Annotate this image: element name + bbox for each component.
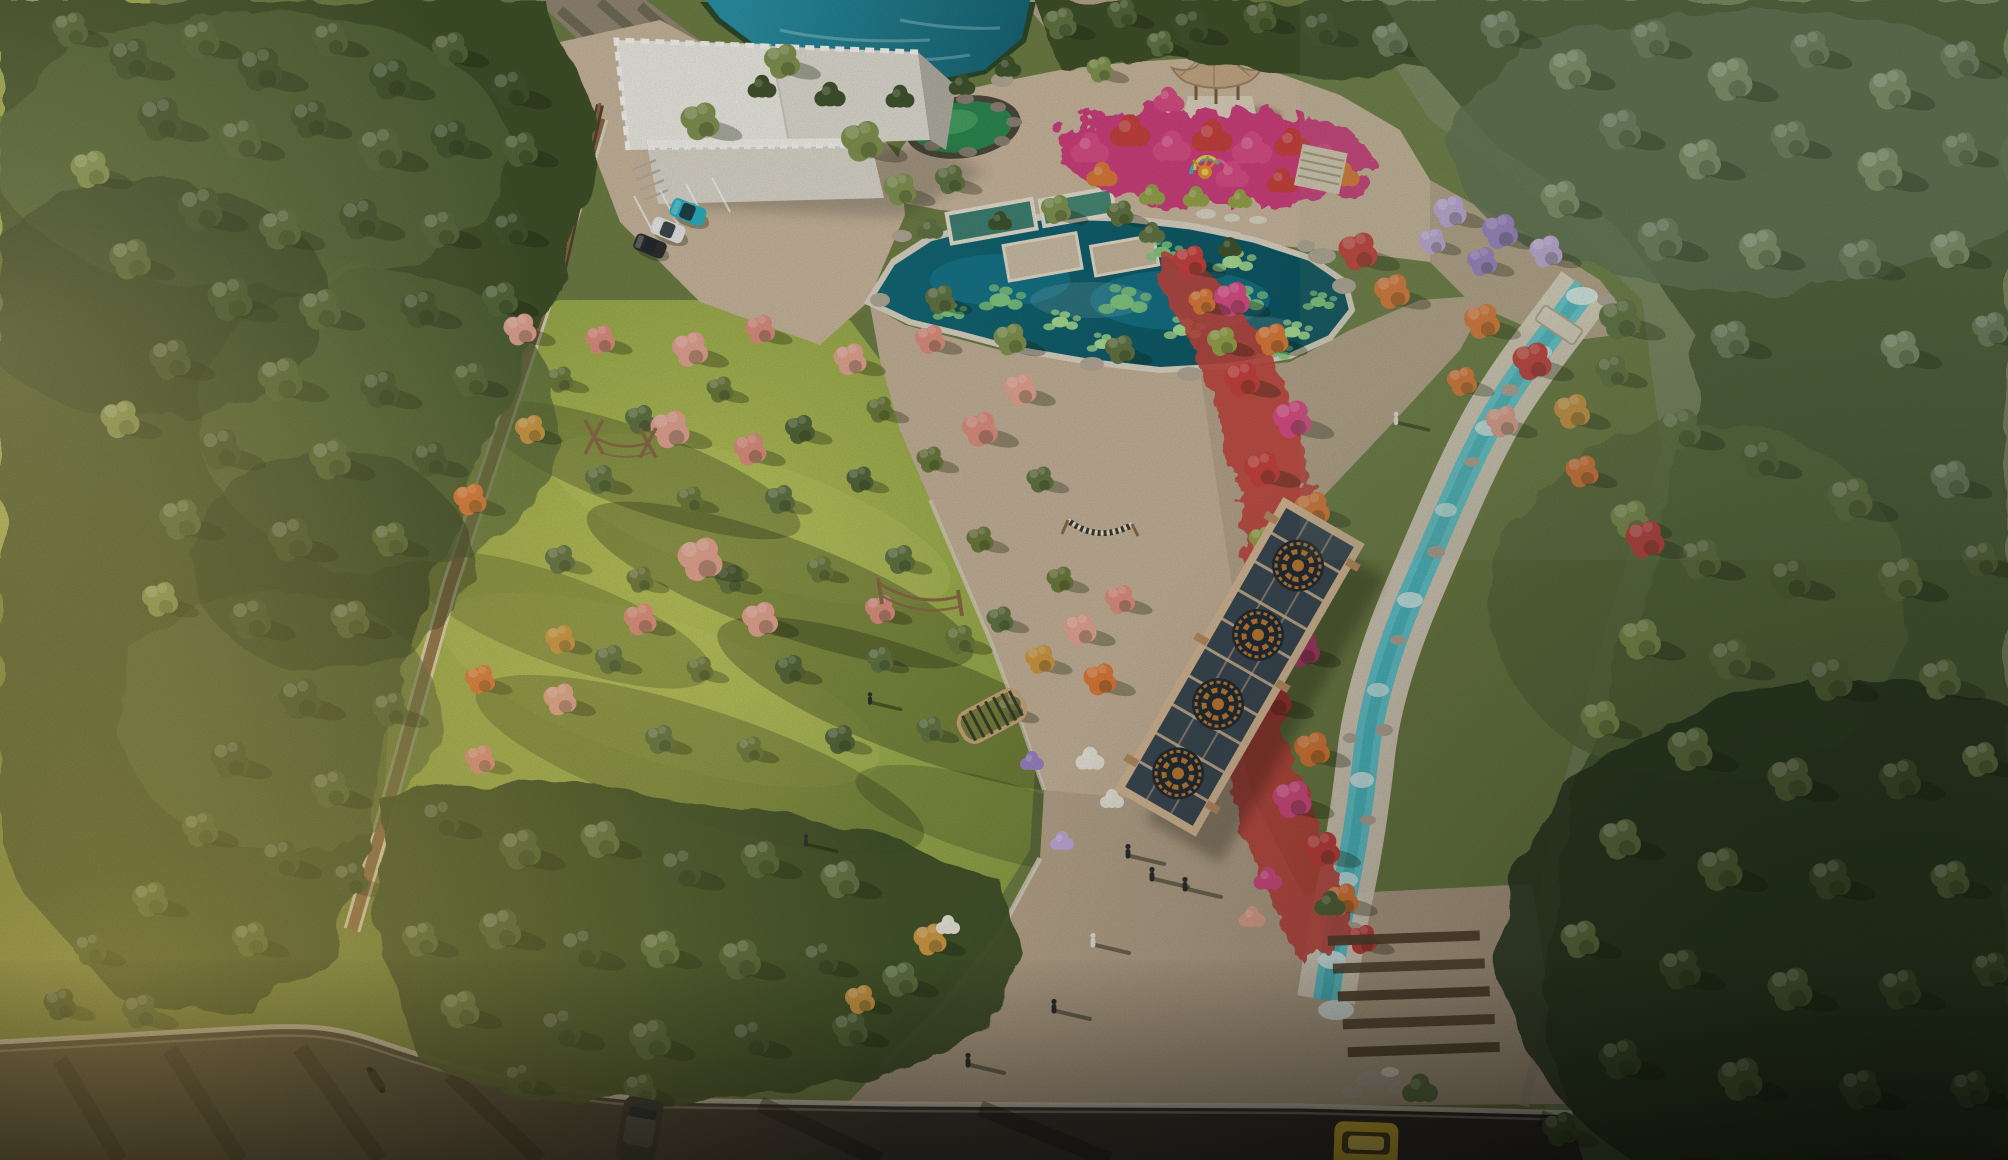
atmosphere [0,0,2008,1160]
scene-canvas [0,0,2008,1160]
film-grain [0,0,2008,1160]
park-rendering [0,0,2008,1160]
